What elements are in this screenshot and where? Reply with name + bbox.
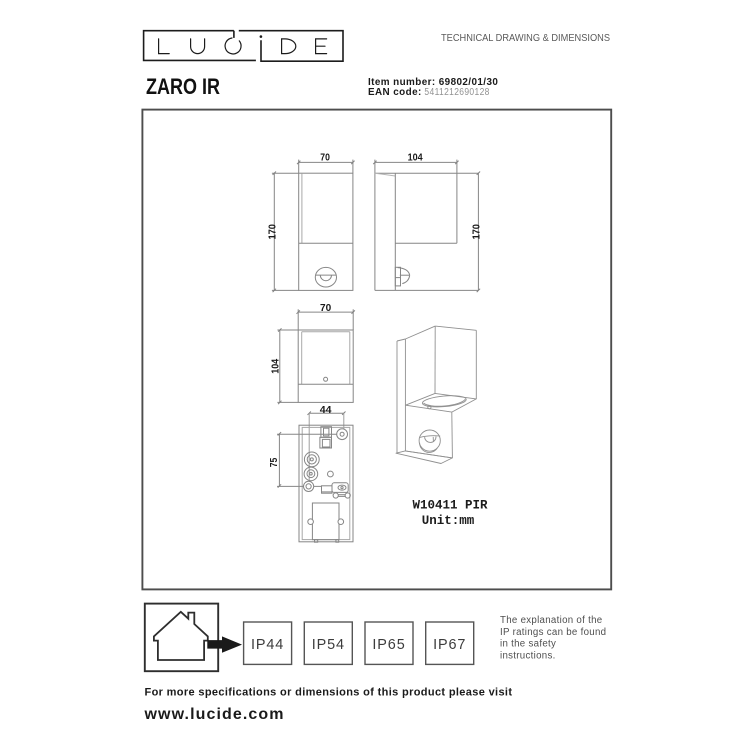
svg-text:75: 75 [269, 457, 280, 467]
svg-text:EAN code: 5411212690128: EAN code: 5411212690128 [368, 87, 490, 98]
svg-text:Unit:mm: Unit:mm [422, 514, 475, 528]
svg-text:in the safety: in the safety [500, 639, 556, 650]
svg-text:170: 170 [472, 224, 483, 240]
svg-text:70: 70 [320, 152, 330, 163]
svg-text:IP ratings can be found: IP ratings can be found [500, 627, 606, 638]
svg-text:For more specifications or dim: For more specifications or dimensions of… [145, 687, 513, 699]
svg-text:W10411 PIR: W10411 PIR [413, 498, 489, 512]
svg-text:instructions.: instructions. [500, 650, 556, 661]
svg-text:TECHNICAL DRAWING & DIMENSIONS: TECHNICAL DRAWING & DIMENSIONS [441, 33, 610, 44]
svg-text:104: 104 [270, 358, 281, 373]
svg-text:IP67: IP67 [433, 637, 466, 653]
svg-text:IP44: IP44 [251, 637, 284, 653]
svg-text:The explanation of the: The explanation of the [500, 615, 602, 626]
svg-text:170: 170 [268, 224, 279, 240]
svg-text:IP65: IP65 [372, 637, 405, 653]
svg-text:ZARO IR: ZARO IR [146, 74, 220, 99]
svg-text:70: 70 [320, 303, 332, 314]
svg-text:IP54: IP54 [312, 637, 345, 653]
svg-text:44: 44 [320, 405, 332, 416]
svg-text:www.lucide.com: www.lucide.com [144, 706, 284, 723]
svg-text:104: 104 [408, 152, 423, 163]
